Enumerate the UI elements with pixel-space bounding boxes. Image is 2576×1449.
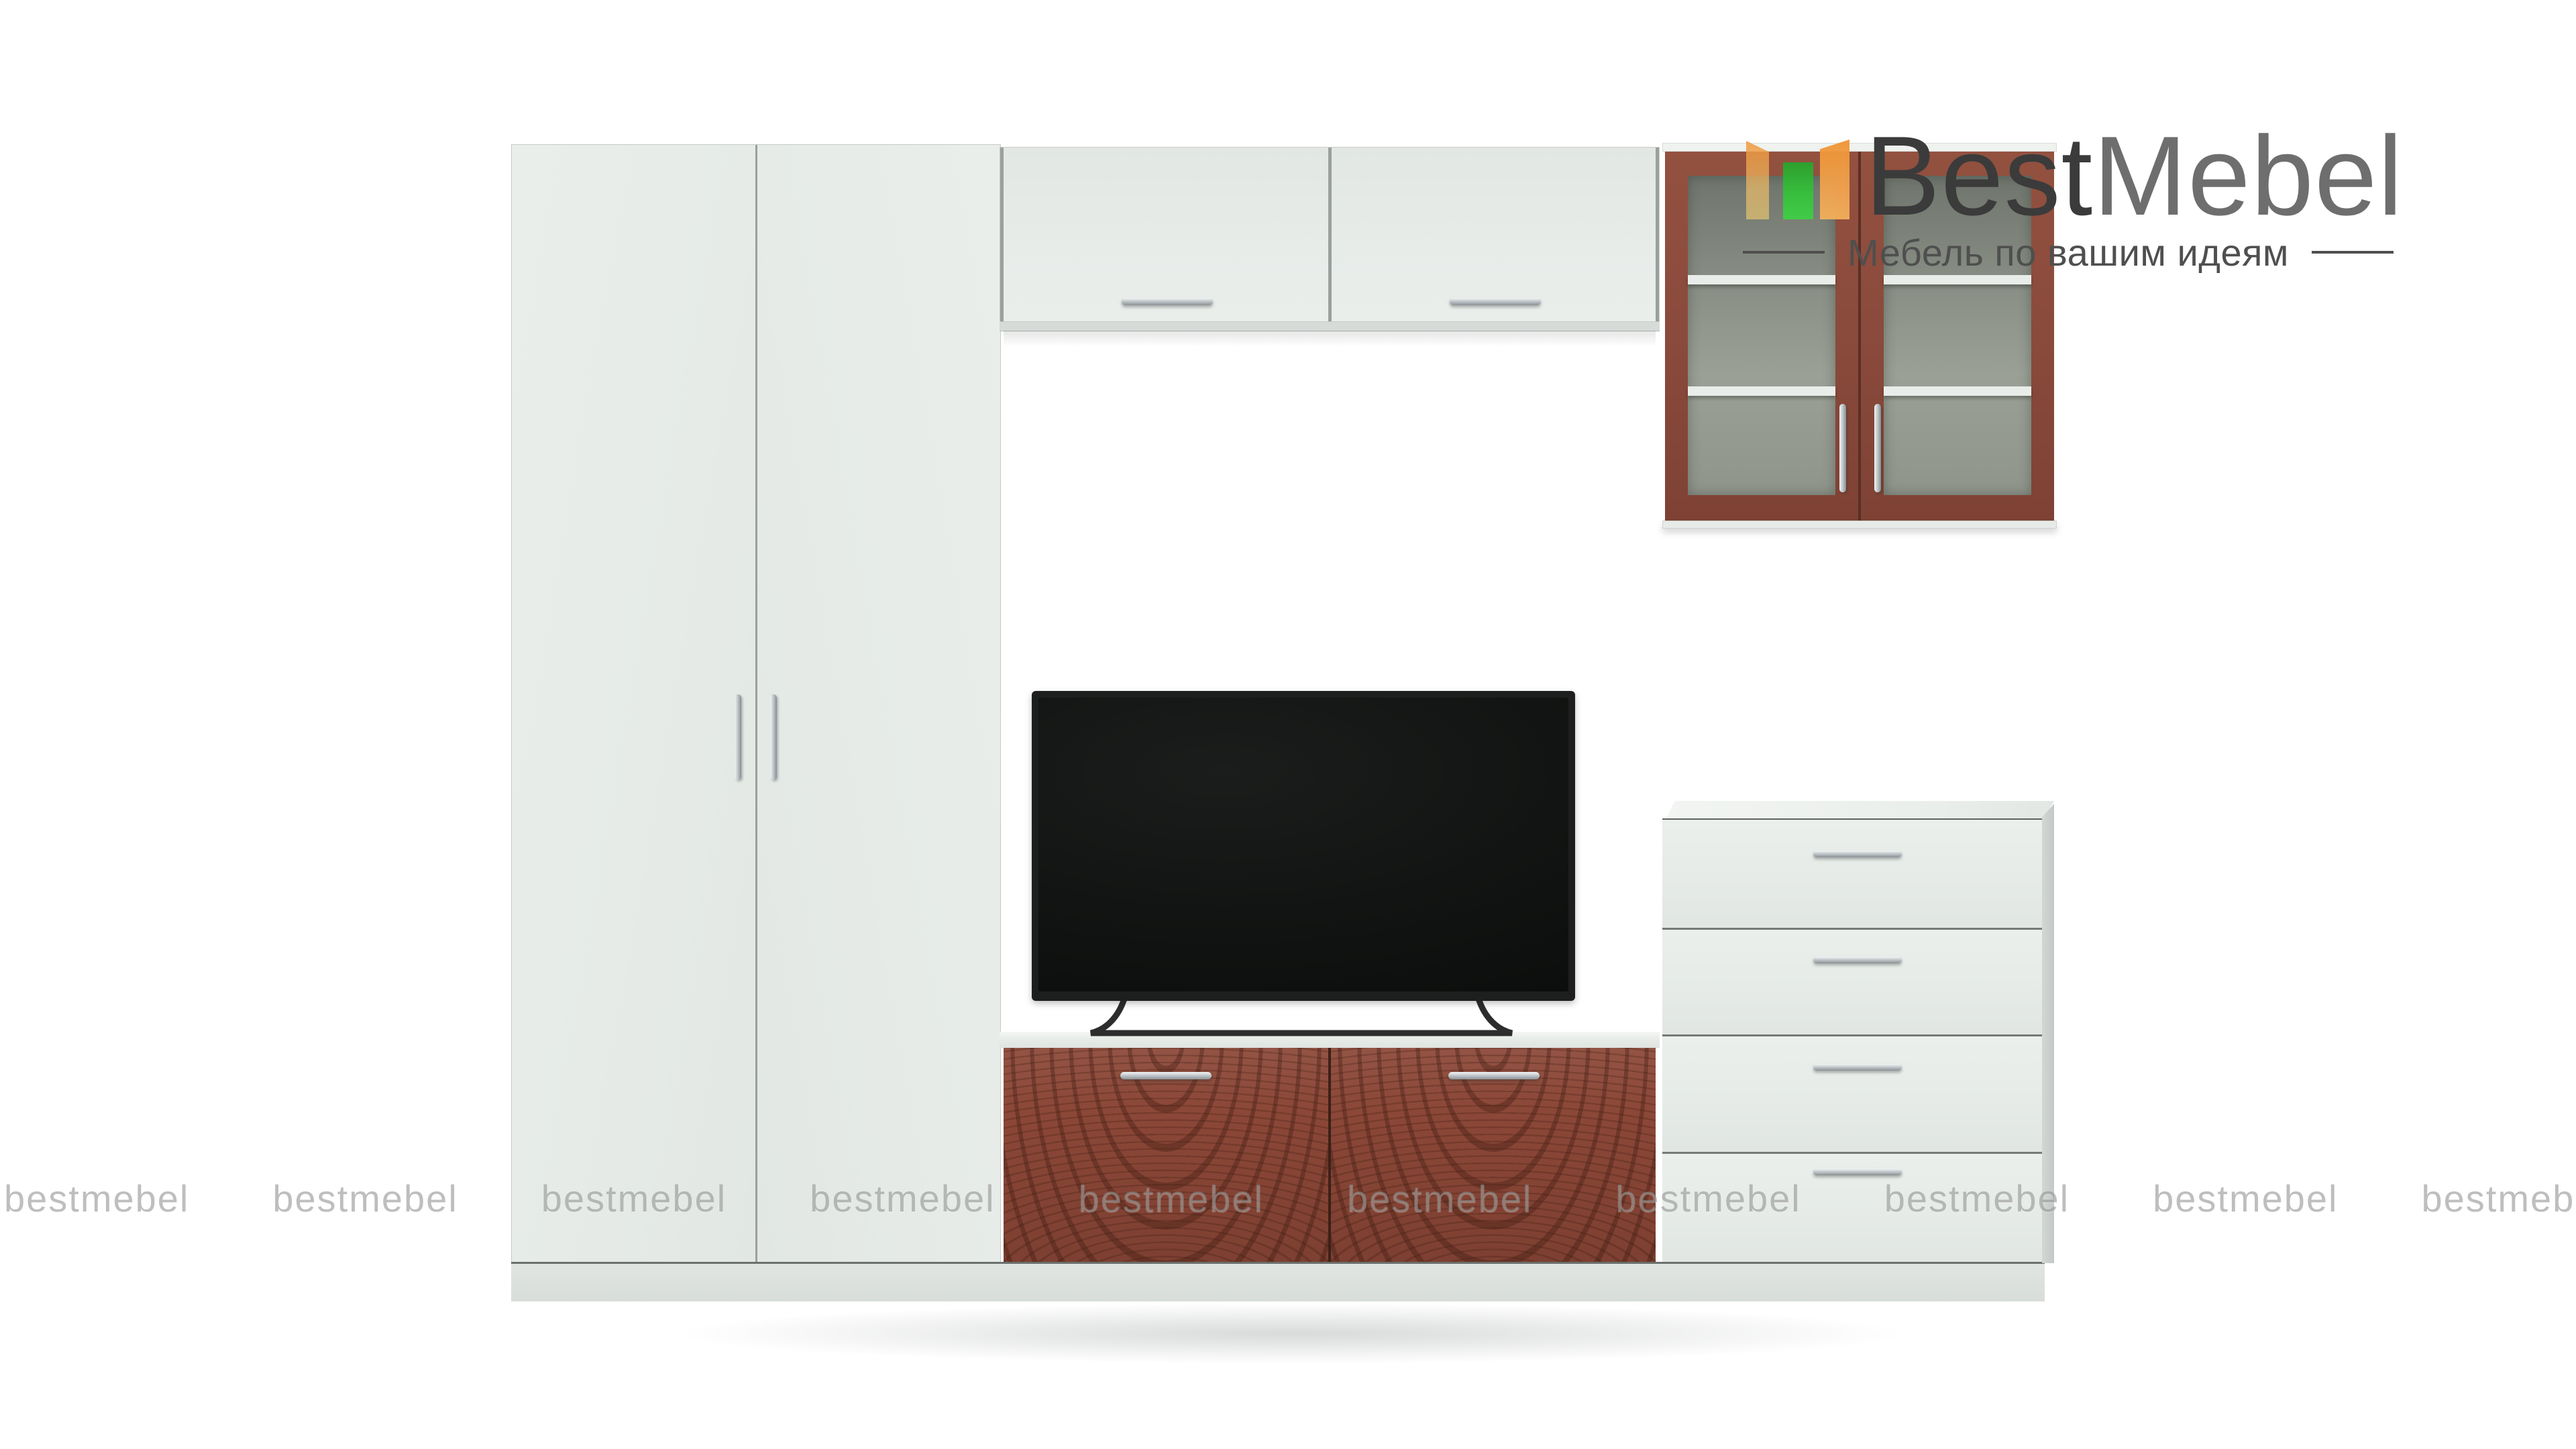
wardrobe-door-left (512, 145, 755, 1263)
tagline-dash-left (1743, 251, 1825, 254)
logo-icon-left-panel (1746, 141, 1769, 219)
wardrobe-handle-right (770, 694, 777, 780)
tv-cabinet (1004, 1048, 1656, 1262)
tv-cabinet-door-left (1004, 1048, 1328, 1262)
logo-icon-center-panel (1783, 162, 1813, 219)
chest-top-surface (1662, 801, 2054, 818)
watermark: bestmebel (1079, 1177, 1264, 1220)
bridge-handle-right (1450, 298, 1541, 305)
chest-drawer-3 (1662, 1036, 2042, 1152)
chest-handle-2 (1813, 957, 1902, 963)
tv-cabinet-handle-left (1120, 1072, 1212, 1079)
wardrobe-handle-left (735, 694, 741, 780)
wardrobe (511, 144, 1001, 1263)
glass-cabinet-handle-left (1839, 404, 1846, 492)
logo-icon-right-panel (1820, 140, 1849, 219)
watermark: bestmebel (272, 1177, 458, 1220)
bridge-bottom-shelf (1000, 322, 1660, 331)
tv-cabinet-handle-right (1448, 1072, 1540, 1079)
product-render-page: { "brand": { "name_primary": "Best", "na… (0, 0, 2576, 1449)
watermark-row: bestmebel bestmebel bestmebel bestmebel … (4, 1177, 2576, 1220)
glass-shelf (1884, 386, 2031, 396)
bridge-door-left (1004, 148, 1328, 321)
chest-drawer-2 (1662, 930, 2042, 1034)
chest-drawer-1 (1662, 820, 2042, 928)
watermark: bestmebel (810, 1177, 995, 1220)
watermark: bestmebel (2422, 1177, 2576, 1220)
plinth (511, 1262, 2045, 1301)
niche-shadow (1004, 331, 1656, 347)
floor-shadow (470, 1293, 2113, 1374)
brand-name: BestMebel (1865, 119, 2404, 232)
tv-cabinet-door-right (1331, 1048, 1656, 1262)
watermark: bestmebel (4, 1177, 189, 1220)
watermark: bestmebel (2153, 1177, 2338, 1220)
bridge-door-right (1332, 148, 1656, 321)
watermark: bestmebel (541, 1177, 727, 1220)
tv-stand-legs (1073, 994, 1529, 1041)
glass-cabinet-bottom-panel (1662, 521, 2057, 529)
bridge-cabinet (1000, 147, 1660, 322)
wardrobe-door-right (757, 145, 1001, 1263)
brand-tagline-row: Мебель по вашим идеям (1743, 229, 2420, 276)
tagline-dash-right (2312, 251, 2394, 254)
tv-screen (1038, 698, 1568, 991)
bridge-handle-left (1122, 298, 1213, 305)
glass-cabinet-handle-right (1874, 404, 1881, 492)
chest-handle-3 (1813, 1064, 1902, 1071)
glass-shelf (1688, 275, 1835, 284)
glass-pane-left (1688, 176, 1835, 495)
chest-handle-4 (1813, 1169, 1902, 1175)
chest-handle-1 (1813, 851, 1902, 857)
tv (1032, 691, 1575, 1001)
glass-shelf (1884, 275, 2031, 284)
brand-tagline: Мебель по вашим идеям (1847, 231, 2289, 274)
glass-shelf (1688, 386, 1835, 396)
brand-name-secondary: Mebel (2093, 113, 2404, 239)
watermark: bestmebel (1615, 1177, 1801, 1220)
brand-name-primary: Best (1865, 113, 2093, 239)
watermark: bestmebel (1347, 1177, 1532, 1220)
watermark: bestmebel (1884, 1177, 2070, 1220)
